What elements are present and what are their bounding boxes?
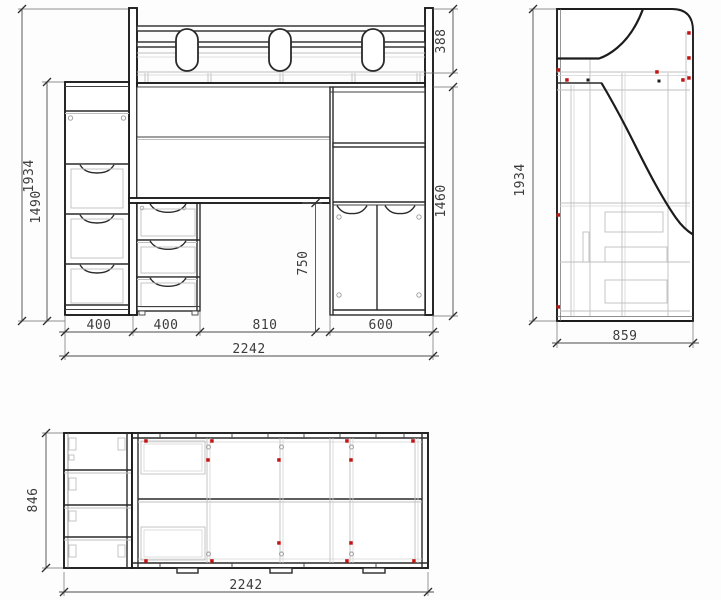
dim-plan-depth: 846 bbox=[26, 429, 64, 572]
back-panel bbox=[137, 87, 330, 198]
plan-view: 846 bbox=[26, 429, 434, 596]
plan-shelf-unit bbox=[64, 433, 132, 568]
front-view: 1934 1490 bbox=[18, 5, 458, 360]
dim-side-depth: 859 bbox=[552, 321, 699, 348]
dim-front-cabinet-height: 1490 bbox=[29, 78, 65, 325]
dim-front-desk-height: 750 bbox=[296, 199, 322, 336]
mounting-notch bbox=[177, 568, 198, 573]
oval-cutout-icon bbox=[269, 29, 291, 71]
dim-label-side-859: 859 bbox=[613, 329, 638, 344]
guard-rail-cutouts bbox=[176, 29, 384, 71]
desk-top bbox=[129, 198, 330, 203]
dim-label-front-2242: 2242 bbox=[232, 342, 265, 357]
plan-main-body bbox=[132, 433, 428, 573]
dim-label-front-1934: 1934 bbox=[22, 159, 37, 192]
shelf-cabinet bbox=[65, 82, 129, 315]
foot bbox=[192, 311, 198, 315]
wardrobe-shelf bbox=[333, 143, 425, 147]
platform-hidden-ticks bbox=[145, 73, 420, 83]
technical-drawing: 1934 1490 bbox=[0, 0, 721, 600]
oval-cutout-icon bbox=[362, 29, 384, 71]
dim-label-front-810: 810 bbox=[253, 318, 278, 333]
wardrobe bbox=[330, 87, 425, 315]
dim-plan-total-width: 2242 bbox=[59, 572, 434, 596]
dim-label-front-750: 750 bbox=[296, 251, 311, 276]
dim-label-plan-2242: 2242 bbox=[229, 578, 262, 593]
dim-label-front-1490: 1490 bbox=[29, 190, 44, 223]
dim-label-side-1934: 1934 bbox=[513, 163, 528, 196]
dim-label-front-388: 388 bbox=[434, 29, 449, 54]
blueprint-canvas: 1934 1490 bbox=[0, 0, 721, 600]
mounting-notch bbox=[363, 568, 385, 573]
dim-front-wardrobe-height: 1460 bbox=[433, 83, 458, 320]
side-view: 1934 bbox=[513, 5, 699, 348]
foot bbox=[139, 311, 145, 315]
bed-right-post bbox=[425, 8, 433, 315]
drawer-unit bbox=[137, 203, 200, 315]
dim-label-front-400b: 400 bbox=[154, 318, 179, 333]
mounting-notch bbox=[270, 568, 292, 573]
dim-label-front-600: 600 bbox=[369, 318, 394, 333]
oval-cutout-icon bbox=[176, 29, 198, 71]
dim-label-plan-846: 846 bbox=[26, 488, 41, 513]
dim-label-front-400a: 400 bbox=[87, 318, 112, 333]
bed-left-post bbox=[129, 8, 137, 315]
dim-front-widths: 400 400 810 600 2242 bbox=[59, 311, 439, 360]
dim-label-front-1460: 1460 bbox=[434, 184, 449, 217]
dim-side-total-height: 1934 bbox=[513, 5, 557, 325]
